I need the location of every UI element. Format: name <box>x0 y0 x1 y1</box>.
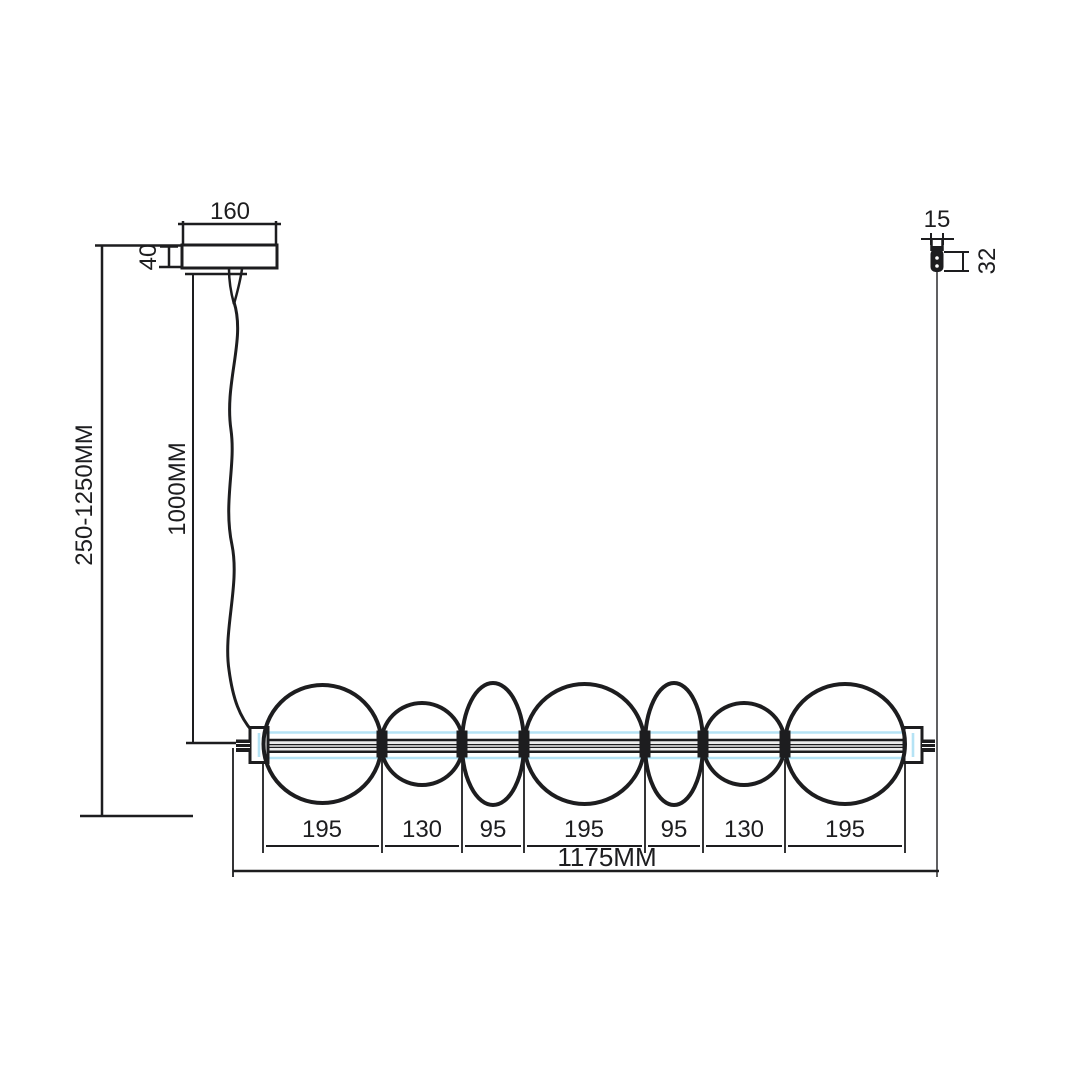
cable-gripper-detail: 15 32 <box>921 206 1001 877</box>
drop-range-label: 250-1250MM <box>71 424 98 565</box>
gripper-hole <box>935 264 939 268</box>
end-knob-left <box>236 740 250 753</box>
connector-collar <box>377 731 388 758</box>
overall-length-dimension: 1175MM <box>233 748 939 877</box>
connector-collar <box>780 731 791 758</box>
gripper-height-label: 32 <box>974 248 1001 275</box>
canopy-width-dimension: 160 <box>178 198 281 246</box>
connector-collar <box>519 731 530 758</box>
connector-collar <box>640 731 651 758</box>
suspension-cable <box>228 269 252 731</box>
pendant-light-dimension-drawing: 160 40 250-1250MM 1000MM 15 <box>0 0 1080 1080</box>
canopy-height-label: 40 <box>135 244 162 271</box>
cable-length-dimension: 1000MM <box>164 274 247 743</box>
tube-fill <box>268 741 905 751</box>
fixture-bar <box>236 683 935 805</box>
cable-length-label: 1000MM <box>164 442 191 535</box>
segment-label: 95 <box>480 816 507 843</box>
end-knob-right <box>922 740 935 753</box>
segment-label: 195 <box>825 816 865 843</box>
connector-collar <box>698 731 709 758</box>
gripper-hole <box>935 256 939 260</box>
segment-label: 95 <box>661 816 688 843</box>
cable-wavy <box>228 302 252 731</box>
ceiling-canopy <box>182 245 277 268</box>
connector-collar <box>457 731 468 758</box>
canopy-height-dimension: 40 <box>135 244 181 271</box>
gripper-body <box>931 249 944 272</box>
segment-label: 130 <box>402 816 442 843</box>
canopy-width-label: 160 <box>210 198 250 225</box>
gripper-width-label: 15 <box>924 206 951 233</box>
overall-length-label: 1175MM <box>557 842 656 872</box>
segment-label: 195 <box>302 816 342 843</box>
segment-dimensions: 195 130 95 195 95 130 195 <box>263 759 905 853</box>
canopy-body <box>182 245 277 268</box>
segment-label: 130 <box>724 816 764 843</box>
segment-label: 195 <box>564 816 604 843</box>
